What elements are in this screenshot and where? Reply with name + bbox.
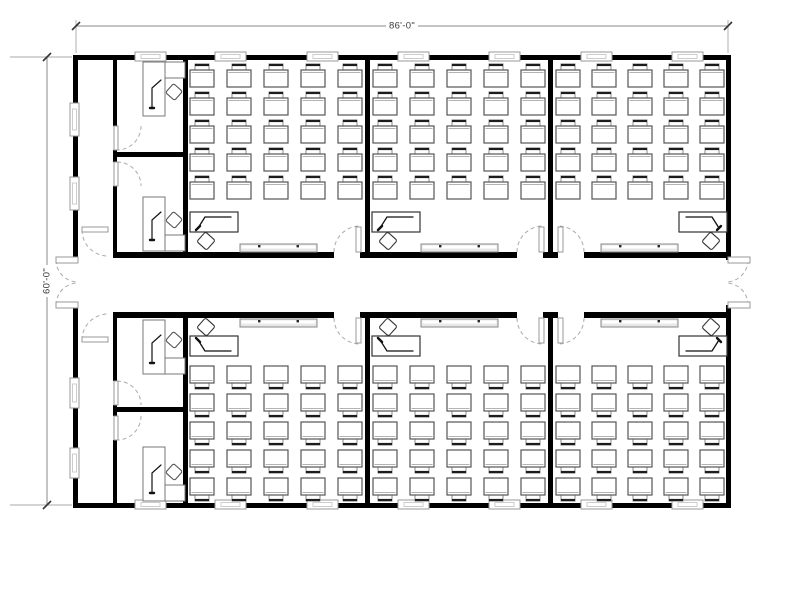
wall-segment <box>365 318 370 503</box>
door-leaf <box>114 416 118 440</box>
whiteboard-marker <box>297 245 299 247</box>
wall-segment <box>113 440 117 503</box>
door-leaf <box>56 302 78 308</box>
classroom-6 <box>556 318 727 501</box>
whiteboard-tray <box>242 321 316 324</box>
office-desk <box>143 320 165 374</box>
window-pane <box>587 503 606 507</box>
whiteboard-marker <box>619 245 621 247</box>
door-swing-arc <box>117 416 141 440</box>
whiteboard-tray <box>603 246 677 249</box>
door-leaf <box>558 227 563 252</box>
door-swing-arc <box>117 162 141 186</box>
whiteboard-marker <box>658 320 660 322</box>
floor-plan-canvas: 86'-0" 60'-0" <box>0 0 800 606</box>
wall-segment <box>113 60 117 126</box>
window-pane <box>73 384 77 402</box>
office-desk <box>165 358 185 374</box>
wall-segment <box>113 252 334 258</box>
office-desk <box>143 197 165 251</box>
door-leaf <box>728 302 750 308</box>
chair <box>379 318 397 336</box>
door-leaf <box>114 381 118 405</box>
whiteboard-tray <box>423 246 497 249</box>
office-3 <box>143 320 185 374</box>
door-swing-arc <box>117 381 141 405</box>
chair <box>166 332 183 349</box>
door-leaf <box>539 318 544 343</box>
door-swing-arc <box>82 314 108 340</box>
wall-segment <box>113 186 117 252</box>
chair <box>702 318 720 336</box>
window-pane <box>587 55 606 59</box>
door-leaf <box>82 227 108 232</box>
whiteboard-tray <box>423 321 497 324</box>
window-pane <box>141 55 160 59</box>
office-4 <box>143 447 185 501</box>
classroom-4 <box>190 318 362 501</box>
wall-segment <box>113 152 188 157</box>
whiteboard-marker <box>439 245 441 247</box>
office-desk <box>165 485 185 501</box>
chair <box>379 232 397 250</box>
door-leaf <box>82 337 108 342</box>
door-leaf <box>114 162 118 186</box>
floor-plan <box>0 0 800 606</box>
office-desk <box>165 62 185 78</box>
wall-segment <box>584 312 726 318</box>
whiteboard-marker <box>478 245 480 247</box>
door-leaf <box>539 227 544 252</box>
office-2 <box>143 197 185 251</box>
classroom-2 <box>372 64 545 250</box>
wall-segment <box>113 312 334 318</box>
whiteboard-marker <box>297 320 299 322</box>
classroom-5 <box>372 318 545 501</box>
window-pane <box>221 503 240 507</box>
door-leaf <box>728 257 750 263</box>
dimension-height-label: 60'-0" <box>42 265 53 297</box>
whiteboard-marker <box>478 320 480 322</box>
chair <box>702 232 720 250</box>
office-1 <box>143 62 185 116</box>
classroom-1 <box>190 64 362 250</box>
window-pane <box>313 55 332 59</box>
chair <box>166 84 183 101</box>
door-swing-arc <box>82 230 108 256</box>
window-pane <box>313 503 332 507</box>
window-pane <box>221 55 240 59</box>
doors-layer <box>56 126 750 440</box>
door-leaf <box>56 257 78 263</box>
wall-segment <box>548 60 553 252</box>
window-pane <box>495 55 514 59</box>
wall-segment <box>360 312 517 318</box>
wall-segment <box>584 252 726 258</box>
wall-segment <box>113 407 188 412</box>
window-pane <box>404 503 423 507</box>
window-pane <box>404 55 423 59</box>
door-leaf <box>558 318 563 343</box>
chair <box>166 464 183 481</box>
whiteboard-marker <box>619 320 621 322</box>
door-leaf <box>356 227 361 252</box>
door-swing-arc <box>117 126 141 150</box>
window-pane <box>495 503 514 507</box>
window-pane <box>141 503 160 507</box>
dimension-width-label: 86'-0" <box>386 21 418 32</box>
wall-segment <box>548 318 553 503</box>
walls-layer <box>73 55 731 508</box>
whiteboard-marker <box>439 320 441 322</box>
classroom-3 <box>556 64 727 250</box>
wall-segment <box>365 60 370 252</box>
whiteboard-tray <box>242 246 316 249</box>
teacher-desk <box>679 336 727 356</box>
wall-segment <box>543 252 558 258</box>
whiteboard-marker <box>258 320 260 322</box>
whiteboard-tray <box>603 321 677 324</box>
chair <box>197 318 215 336</box>
teacher-desk <box>679 212 727 232</box>
whiteboard-marker <box>658 245 660 247</box>
wall-segment <box>113 318 117 381</box>
chair <box>166 212 183 229</box>
chair <box>197 232 215 250</box>
window-pane <box>678 503 697 507</box>
wall-segment <box>360 252 517 258</box>
door-leaf <box>114 126 118 150</box>
window-pane <box>73 183 77 204</box>
whiteboard-marker <box>258 245 260 247</box>
office-desk <box>165 235 185 251</box>
wall-segment <box>73 55 78 260</box>
window-pane <box>73 454 77 472</box>
window-pane <box>678 55 697 59</box>
door-leaf <box>356 318 361 343</box>
window-pane <box>73 109 77 130</box>
wall-segment <box>543 312 558 318</box>
